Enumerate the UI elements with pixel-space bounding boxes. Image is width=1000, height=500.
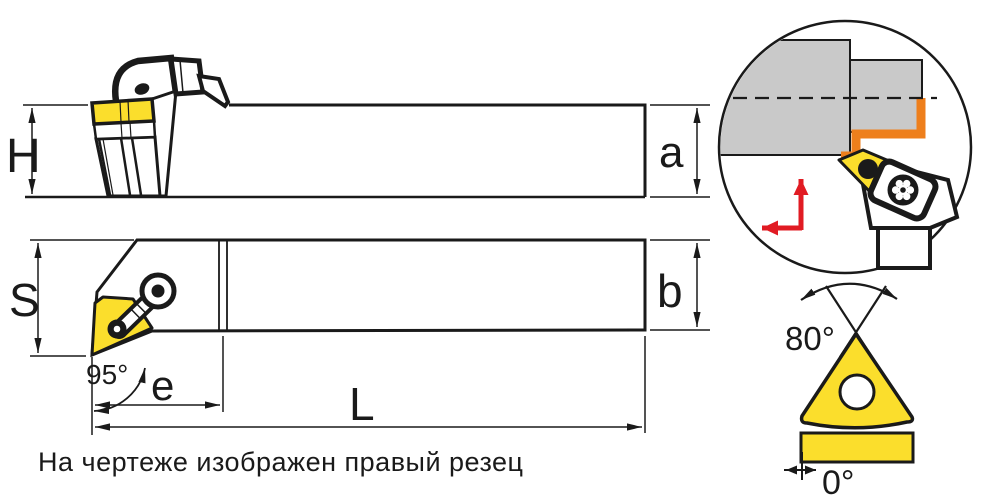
label-S: S	[9, 274, 40, 326]
tool-shank-side	[229, 105, 645, 197]
insert-side-profile	[801, 433, 913, 462]
holder-shank-detail	[878, 228, 930, 268]
clamp-screw-detail	[133, 81, 151, 96]
technical-drawing: H a S b	[0, 0, 1000, 500]
dimension-H: H	[6, 105, 88, 194]
insert-side	[92, 99, 154, 124]
label-e: e	[151, 362, 174, 409]
dimension-L: L	[95, 336, 645, 433]
angle-95: 95°	[86, 357, 145, 435]
clamp-arm	[199, 76, 228, 106]
label-b: b	[657, 265, 683, 317]
label-80deg: 80°	[785, 320, 835, 357]
label-a: a	[659, 128, 684, 177]
angle-arc-80	[801, 284, 897, 300]
label-L: L	[349, 378, 375, 430]
insert-front-view: 80°	[785, 284, 912, 428]
torx-screw-icon	[888, 175, 919, 206]
label-95deg: 95°	[86, 359, 128, 390]
workpiece-small-diameter	[850, 60, 922, 132]
side-view: H a	[6, 58, 710, 197]
drawing-canvas: H a S b	[0, 0, 1000, 500]
insert-hole	[840, 375, 874, 409]
label-0deg: 0°	[822, 464, 855, 500]
dimension-a: a	[650, 105, 710, 197]
detail-view	[700, 21, 971, 273]
dimension-b: b	[650, 240, 710, 330]
label-H: H	[6, 130, 41, 183]
plan-view: S b 95° e L	[9, 240, 710, 435]
tool-head-side	[92, 58, 228, 196]
insert-side-view: 0°	[784, 433, 913, 500]
drawing-note: На чертеже изображен правый резец	[38, 447, 524, 477]
